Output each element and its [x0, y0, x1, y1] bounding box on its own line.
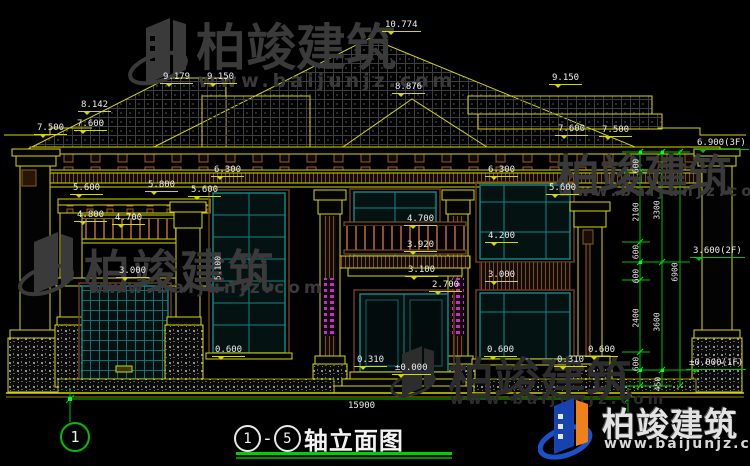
- level-4700-center: 4.700: [404, 214, 437, 226]
- level-0310-right: 0.310: [554, 355, 587, 367]
- chain-2100: 2100: [632, 190, 641, 234]
- level-3920: 3.920: [404, 240, 437, 252]
- figure-title: 1 - 5 轴立面图: [234, 421, 404, 456]
- floor-level-2f: 3.600(2F): [690, 246, 745, 258]
- level-5600-b: 5.600: [188, 185, 221, 197]
- chain-600-d: 600: [632, 342, 641, 386]
- title-text: 轴立面图: [304, 421, 404, 456]
- level-8876: 8.876: [392, 82, 425, 94]
- chain-600-c: 600: [632, 254, 641, 298]
- watermark-logo-left: [18, 222, 78, 304]
- level-2700: 2.700: [429, 280, 462, 292]
- level-7500-left: 7.500: [34, 123, 67, 135]
- level-0600-right-a: 0.600: [484, 345, 517, 357]
- level-6300-right: 6.300: [485, 165, 518, 177]
- chain-6900: 6900: [671, 250, 680, 294]
- level-5600-right: 5.600: [546, 183, 579, 195]
- level-6300-left: 6.300: [211, 165, 244, 177]
- brand-footer: 柏竣建筑 www.baijunjz.com: [538, 388, 750, 466]
- level-7500-right: 7.500: [599, 125, 632, 137]
- level-8142: 8.142: [78, 100, 111, 112]
- brand-site: www.baijunjz.com: [604, 436, 750, 452]
- title-axis-start: 1: [234, 425, 261, 452]
- axis-bubble-label: 1: [70, 428, 79, 446]
- level-0600-left: 0.600: [212, 345, 245, 357]
- level-3100: 3.100: [405, 265, 438, 277]
- chain-3600: 3600: [653, 300, 662, 344]
- level-7600-right: 7.600: [555, 124, 588, 136]
- axis-bubble-1: 1: [60, 422, 90, 452]
- level-7600-left: 7.600: [74, 119, 107, 131]
- level-0310-left: 0.310: [354, 355, 387, 367]
- level-9150-left: 9.150: [204, 72, 237, 84]
- chain-3300: 3300: [653, 188, 662, 232]
- watermark-site-left: www.baijunjz.com: [88, 278, 326, 298]
- overall-width-dim: 15900: [348, 401, 375, 411]
- level-0000-door: ±0.000: [392, 363, 431, 375]
- level-3000-left: 3.000: [116, 266, 149, 278]
- level-5800: 5.800: [145, 180, 178, 192]
- level-5600-a: 5.600: [70, 183, 103, 195]
- floor-level-3f: 6.900(3F): [694, 138, 749, 150]
- level-0600-right-b: 0.600: [585, 345, 618, 357]
- level-9150-right: 9.150: [549, 73, 582, 85]
- title-underline-top: [236, 452, 452, 455]
- floor-level-1f: ±0.000(1F): [686, 358, 746, 370]
- chain-600-a: 600: [632, 144, 641, 188]
- level-4200: 4.200: [485, 231, 518, 243]
- level-4800: 4.800: [74, 210, 107, 222]
- level-3000-right: 3.000: [485, 270, 518, 282]
- chain-2400: 2400: [632, 296, 641, 340]
- brand-logo-icon: [538, 390, 600, 466]
- title-dash: -: [262, 428, 273, 449]
- title-axis-end: 5: [274, 425, 301, 452]
- title-underline-bottom: [236, 457, 452, 459]
- level-10774: 10.774: [382, 20, 421, 32]
- level-4700-left: 4.700: [112, 213, 145, 225]
- level-9179: 9.179: [160, 72, 193, 84]
- stair-window-height-5100: 5.100: [214, 246, 223, 290]
- cad-canvas: 柏竣建筑 www.baijunjz.com 柏竣建筑 www.baijunjz.…: [0, 0, 750, 466]
